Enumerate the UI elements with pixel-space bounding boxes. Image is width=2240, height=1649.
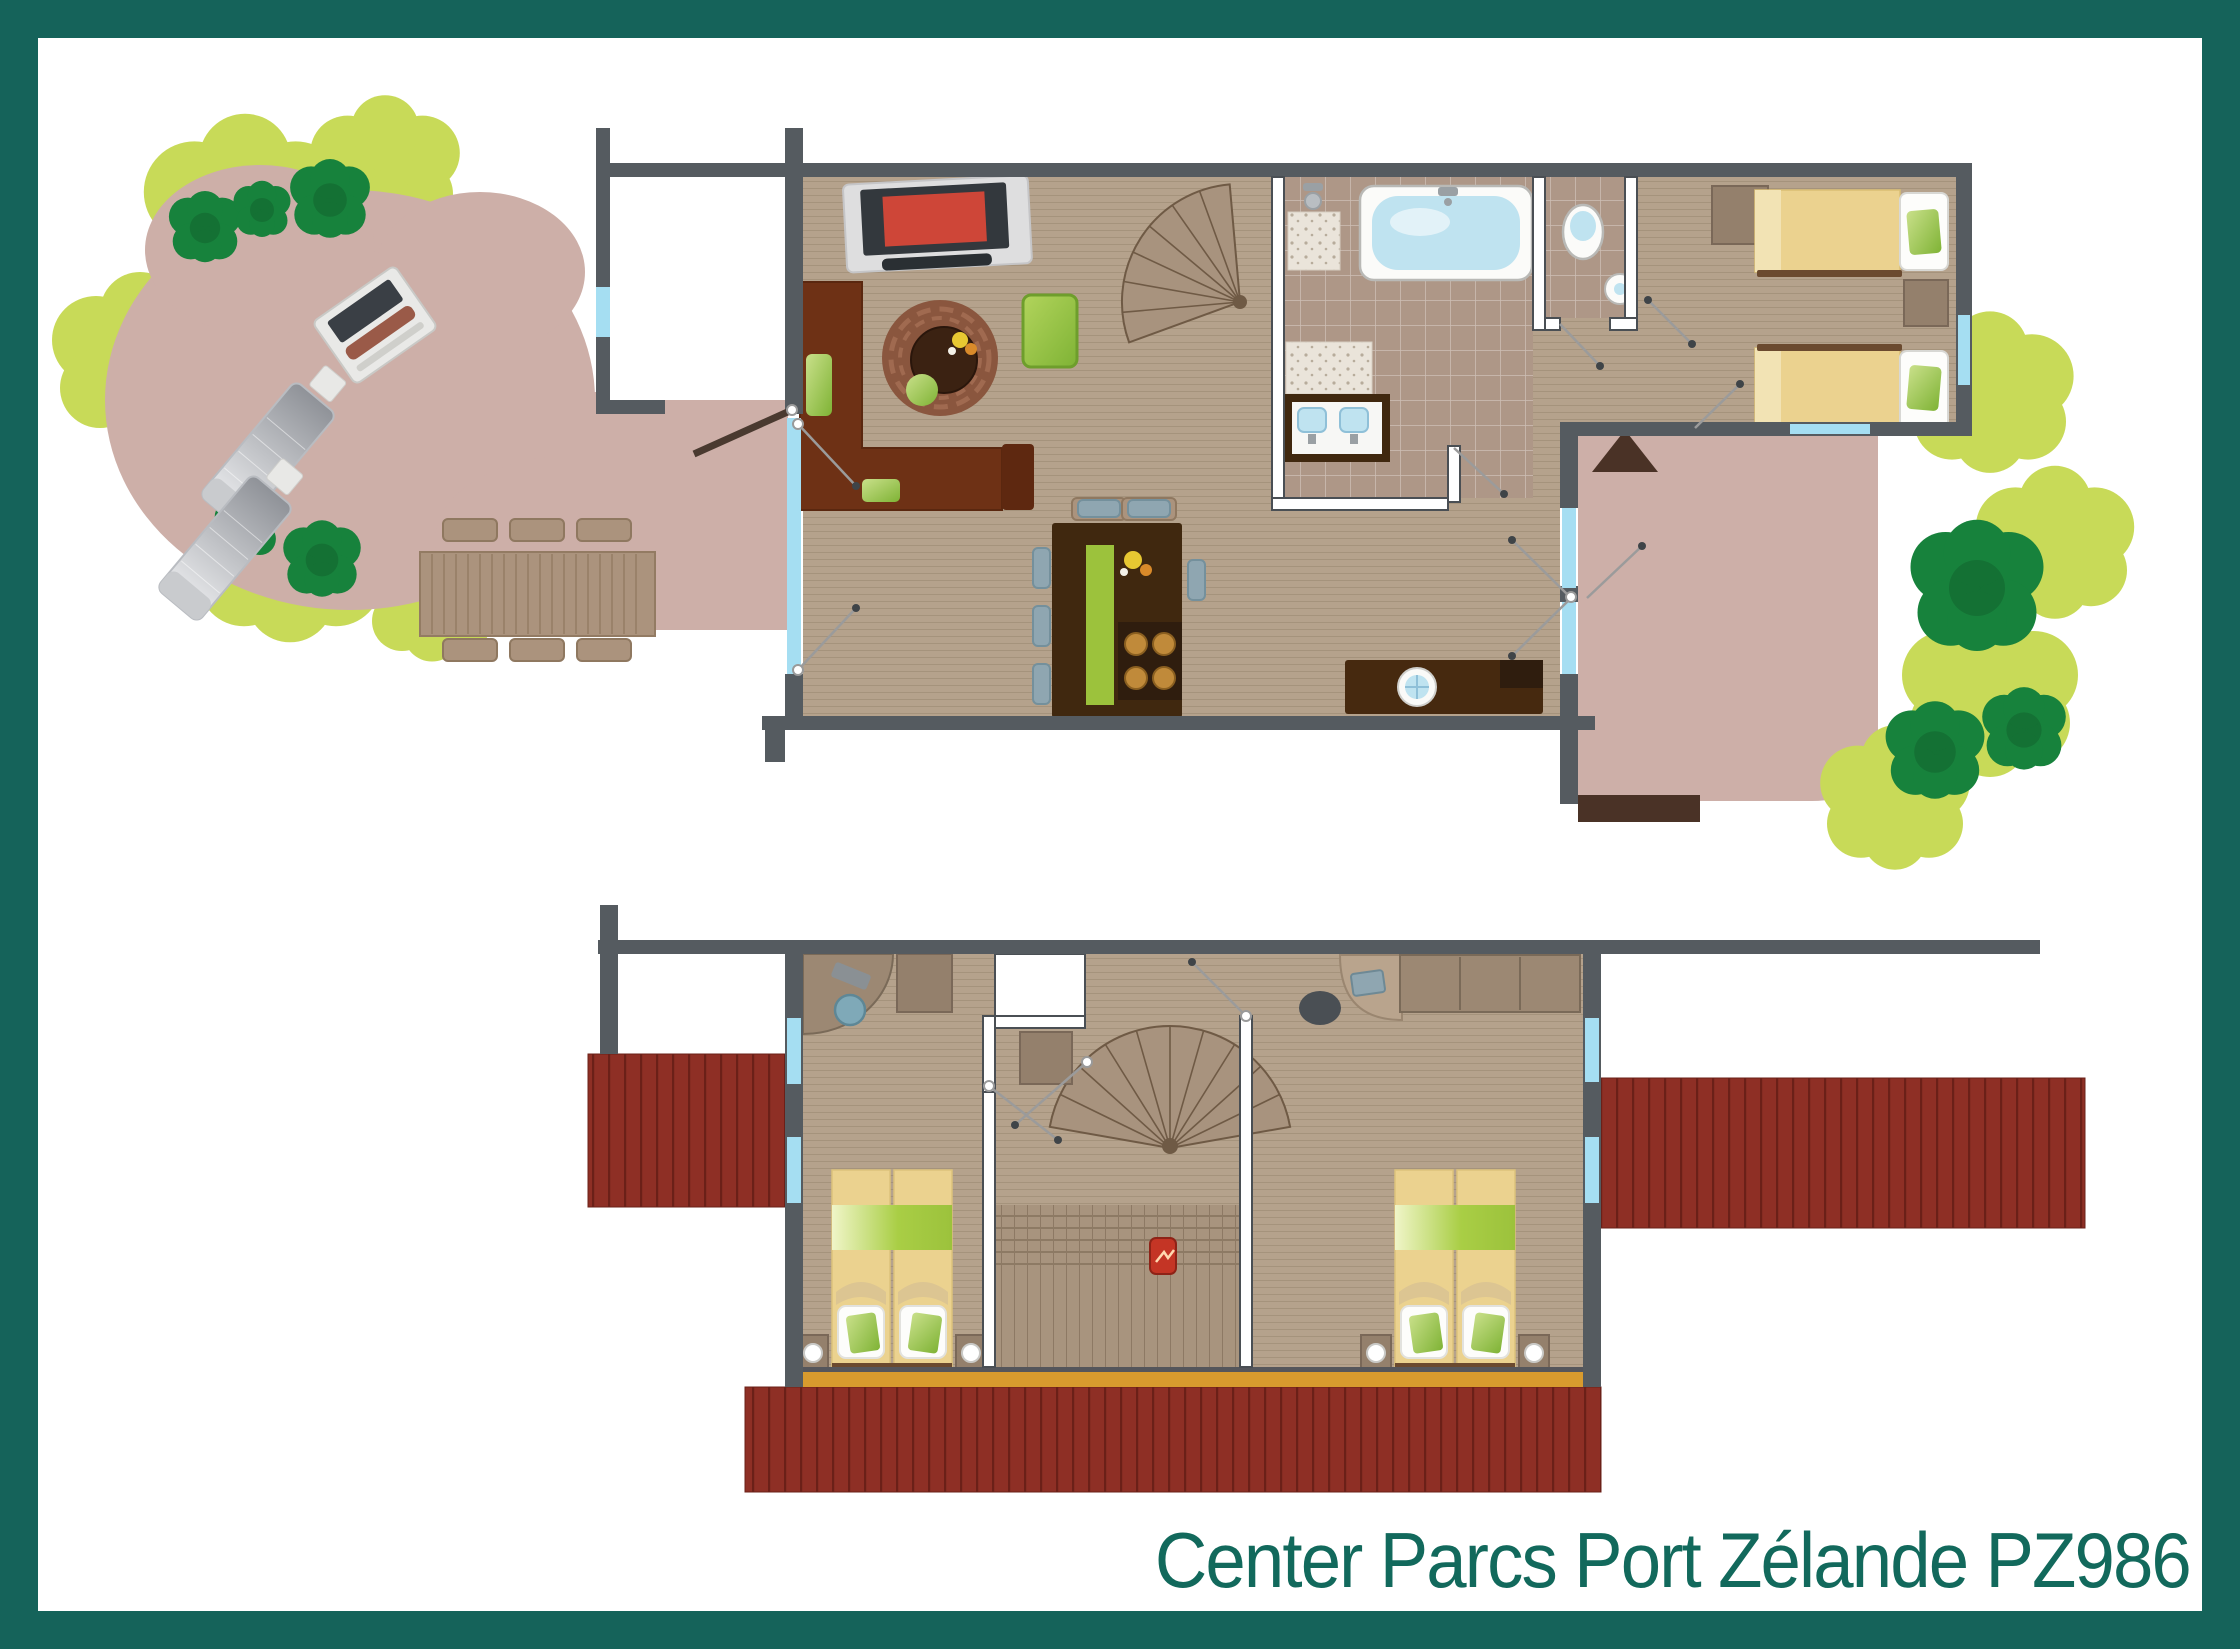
storage-room-floor <box>610 177 785 400</box>
deck-right <box>1601 1078 2085 1228</box>
lamp <box>1525 1344 1543 1362</box>
stairwell-void <box>995 1205 1240 1367</box>
washbasin-icon <box>835 995 865 1025</box>
plan-title: Center Parcs Port Zélande PZ986 <box>1155 1518 2190 1604</box>
bathtub-icon <box>1360 186 1532 280</box>
lamp <box>1367 1344 1385 1362</box>
deck-bottom <box>745 1387 1601 1492</box>
single-bed <box>1755 190 1948 277</box>
entry-terrace <box>1578 436 1878 801</box>
floorplan-drawing <box>0 0 2240 1649</box>
shower-mat <box>1288 212 1340 270</box>
deck-left <box>588 1054 785 1207</box>
lamp <box>962 1344 980 1362</box>
green-armchair <box>1023 295 1077 367</box>
stair-opening <box>995 954 1085 1016</box>
sideboard <box>1345 660 1543 714</box>
shower-icon <box>1303 183 1323 209</box>
kitchen-island <box>1033 498 1205 718</box>
wardrobe <box>897 954 952 1012</box>
tv-unit <box>843 175 1032 273</box>
ground-floor-plan <box>52 95 2134 870</box>
toilet-icon <box>1563 205 1603 259</box>
stair-opening-wall <box>995 1016 1085 1028</box>
first-floor-plan <box>588 905 2085 1492</box>
double-washbasin <box>1284 394 1390 462</box>
bath-mat <box>1286 342 1372 394</box>
window-sill <box>785 1372 1601 1387</box>
landing-closet <box>1020 1032 1072 1084</box>
desk-cabinet <box>1400 955 1580 1012</box>
lamp <box>804 1344 822 1362</box>
desk-chair <box>1299 991 1341 1025</box>
glass-front-line <box>785 1367 1601 1372</box>
single-bed <box>1755 344 1948 430</box>
entry-step <box>1578 795 1700 822</box>
rug-and-coffee-table <box>882 300 998 416</box>
nightstand <box>1904 280 1948 326</box>
laptop <box>1351 970 1386 996</box>
fire-extinguisher-icon <box>1150 1238 1176 1274</box>
floorplan-page: Center Parcs Port Zélande PZ986 <box>0 0 2240 1649</box>
garden-dining-set <box>420 519 655 661</box>
